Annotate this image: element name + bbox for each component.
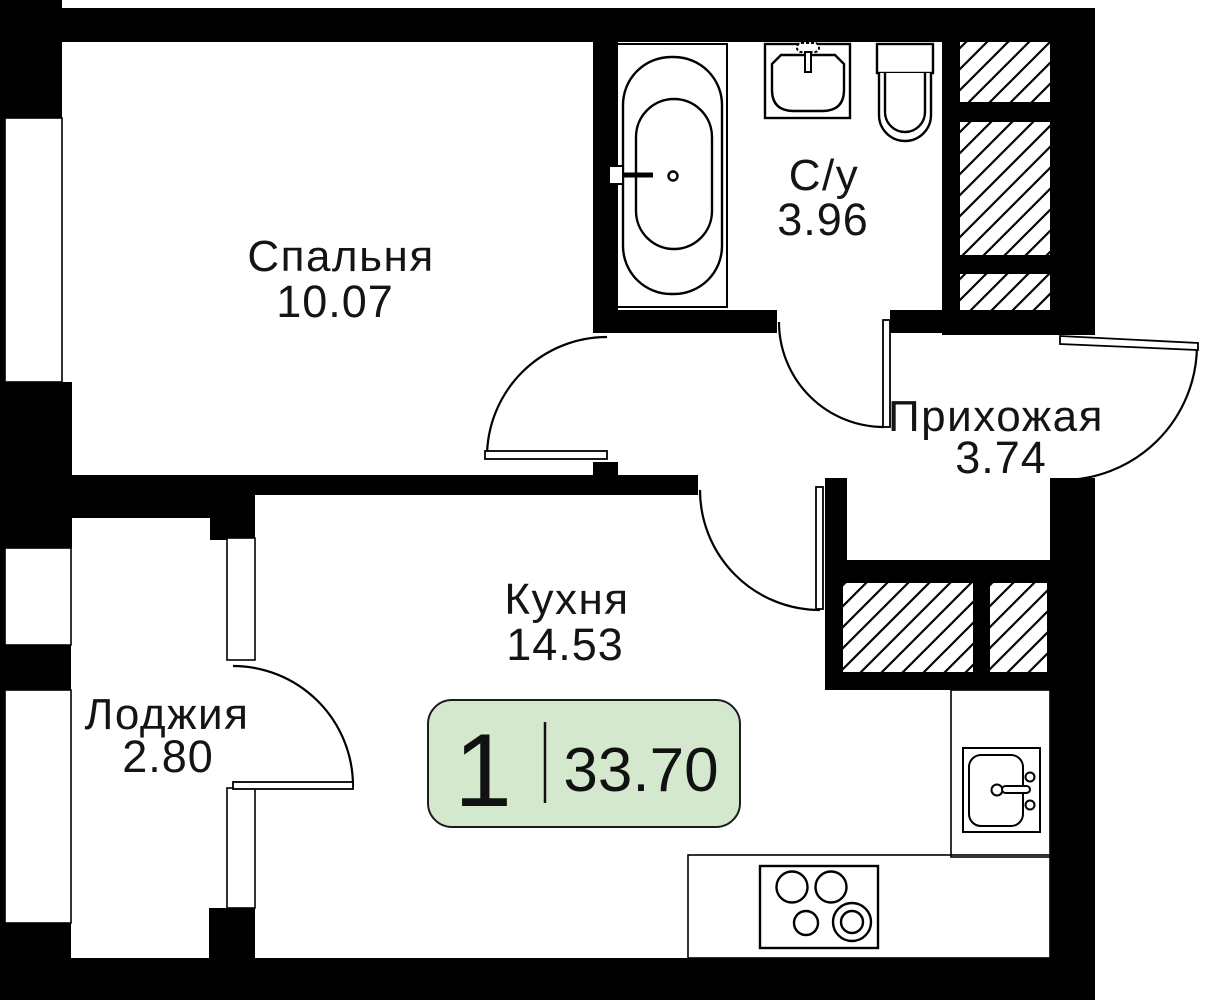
- kitchen-fixtures: [688, 690, 1050, 958]
- walls: [0, 0, 1095, 1000]
- loggia-area: 2.80: [122, 731, 214, 782]
- door-swing-arc: [487, 337, 607, 457]
- shaft-hatch: [843, 583, 973, 672]
- loggia-window: [5, 690, 71, 923]
- loggia-glazing: [227, 788, 255, 908]
- wall-segment: [960, 255, 1050, 274]
- floor-plan: Спальня 10.07 С/у 3.96 Прихожая 3.74 Кух…: [0, 0, 1209, 1000]
- shaft-hatch: [960, 274, 1050, 310]
- bathtub-icon: [609, 44, 727, 307]
- wall-segment: [210, 518, 255, 540]
- kitchen-label: Кухня: [504, 575, 629, 624]
- wall-segment: [5, 645, 71, 690]
- wall-segment: [960, 310, 1050, 335]
- shaft-hatch: [990, 583, 1047, 672]
- kitchen-door: [700, 487, 823, 610]
- door-swing-arc: [700, 490, 820, 610]
- wall-segment: [942, 8, 960, 335]
- wall-segment: [593, 310, 777, 333]
- bedroom-door: [485, 337, 607, 459]
- badge-room-count: 1: [454, 713, 512, 829]
- shaft-hatch: [960, 122, 1050, 255]
- stove-icon: [760, 866, 878, 948]
- loggia-door: [233, 666, 353, 789]
- wall-segment: [5, 475, 255, 518]
- toilet-icon: [877, 44, 933, 141]
- wall-segment: [5, 382, 72, 548]
- bedroom-label: Спальня: [247, 232, 434, 281]
- door-leaf: [233, 782, 353, 789]
- washbasin-icon: [765, 43, 850, 118]
- wall-segment: [255, 475, 698, 495]
- door-leaf: [816, 487, 823, 609]
- bathroom-fixtures: [609, 43, 933, 307]
- wall-segment: [960, 102, 1050, 122]
- kitchen-area: 14.53: [506, 619, 624, 670]
- floor-plan-drawing: Спальня 10.07 С/у 3.96 Прихожая 3.74 Кух…: [0, 0, 1209, 1000]
- bathroom-label: С/у: [789, 151, 860, 200]
- loggia-window: [5, 548, 71, 645]
- wall-segment: [1050, 8, 1095, 335]
- door-leaf: [1060, 336, 1198, 350]
- badge-total-area: 33.70: [563, 736, 718, 805]
- area-badge: 1 33.70: [428, 700, 740, 829]
- door-swing-arc: [233, 666, 353, 786]
- shaft-hatch: [960, 42, 1050, 102]
- door-leaf: [485, 451, 607, 459]
- bathroom-door: [779, 320, 890, 427]
- door-swing-arc: [779, 322, 884, 427]
- wall-segment: [5, 8, 1095, 42]
- bedroom-area: 10.07: [276, 276, 394, 327]
- wall-segment: [0, 958, 1095, 1000]
- bedroom-window: [5, 118, 62, 382]
- loggia-glazing: [227, 538, 255, 660]
- bathroom-area: 3.96: [777, 194, 869, 245]
- kitchen-sink-icon: [963, 748, 1040, 832]
- wall-segment: [1050, 478, 1095, 1000]
- wall-segment: [890, 310, 942, 333]
- wall-segment: [825, 478, 847, 568]
- hallway-area: 3.74: [955, 432, 1047, 483]
- door-hinge-block: [593, 462, 618, 480]
